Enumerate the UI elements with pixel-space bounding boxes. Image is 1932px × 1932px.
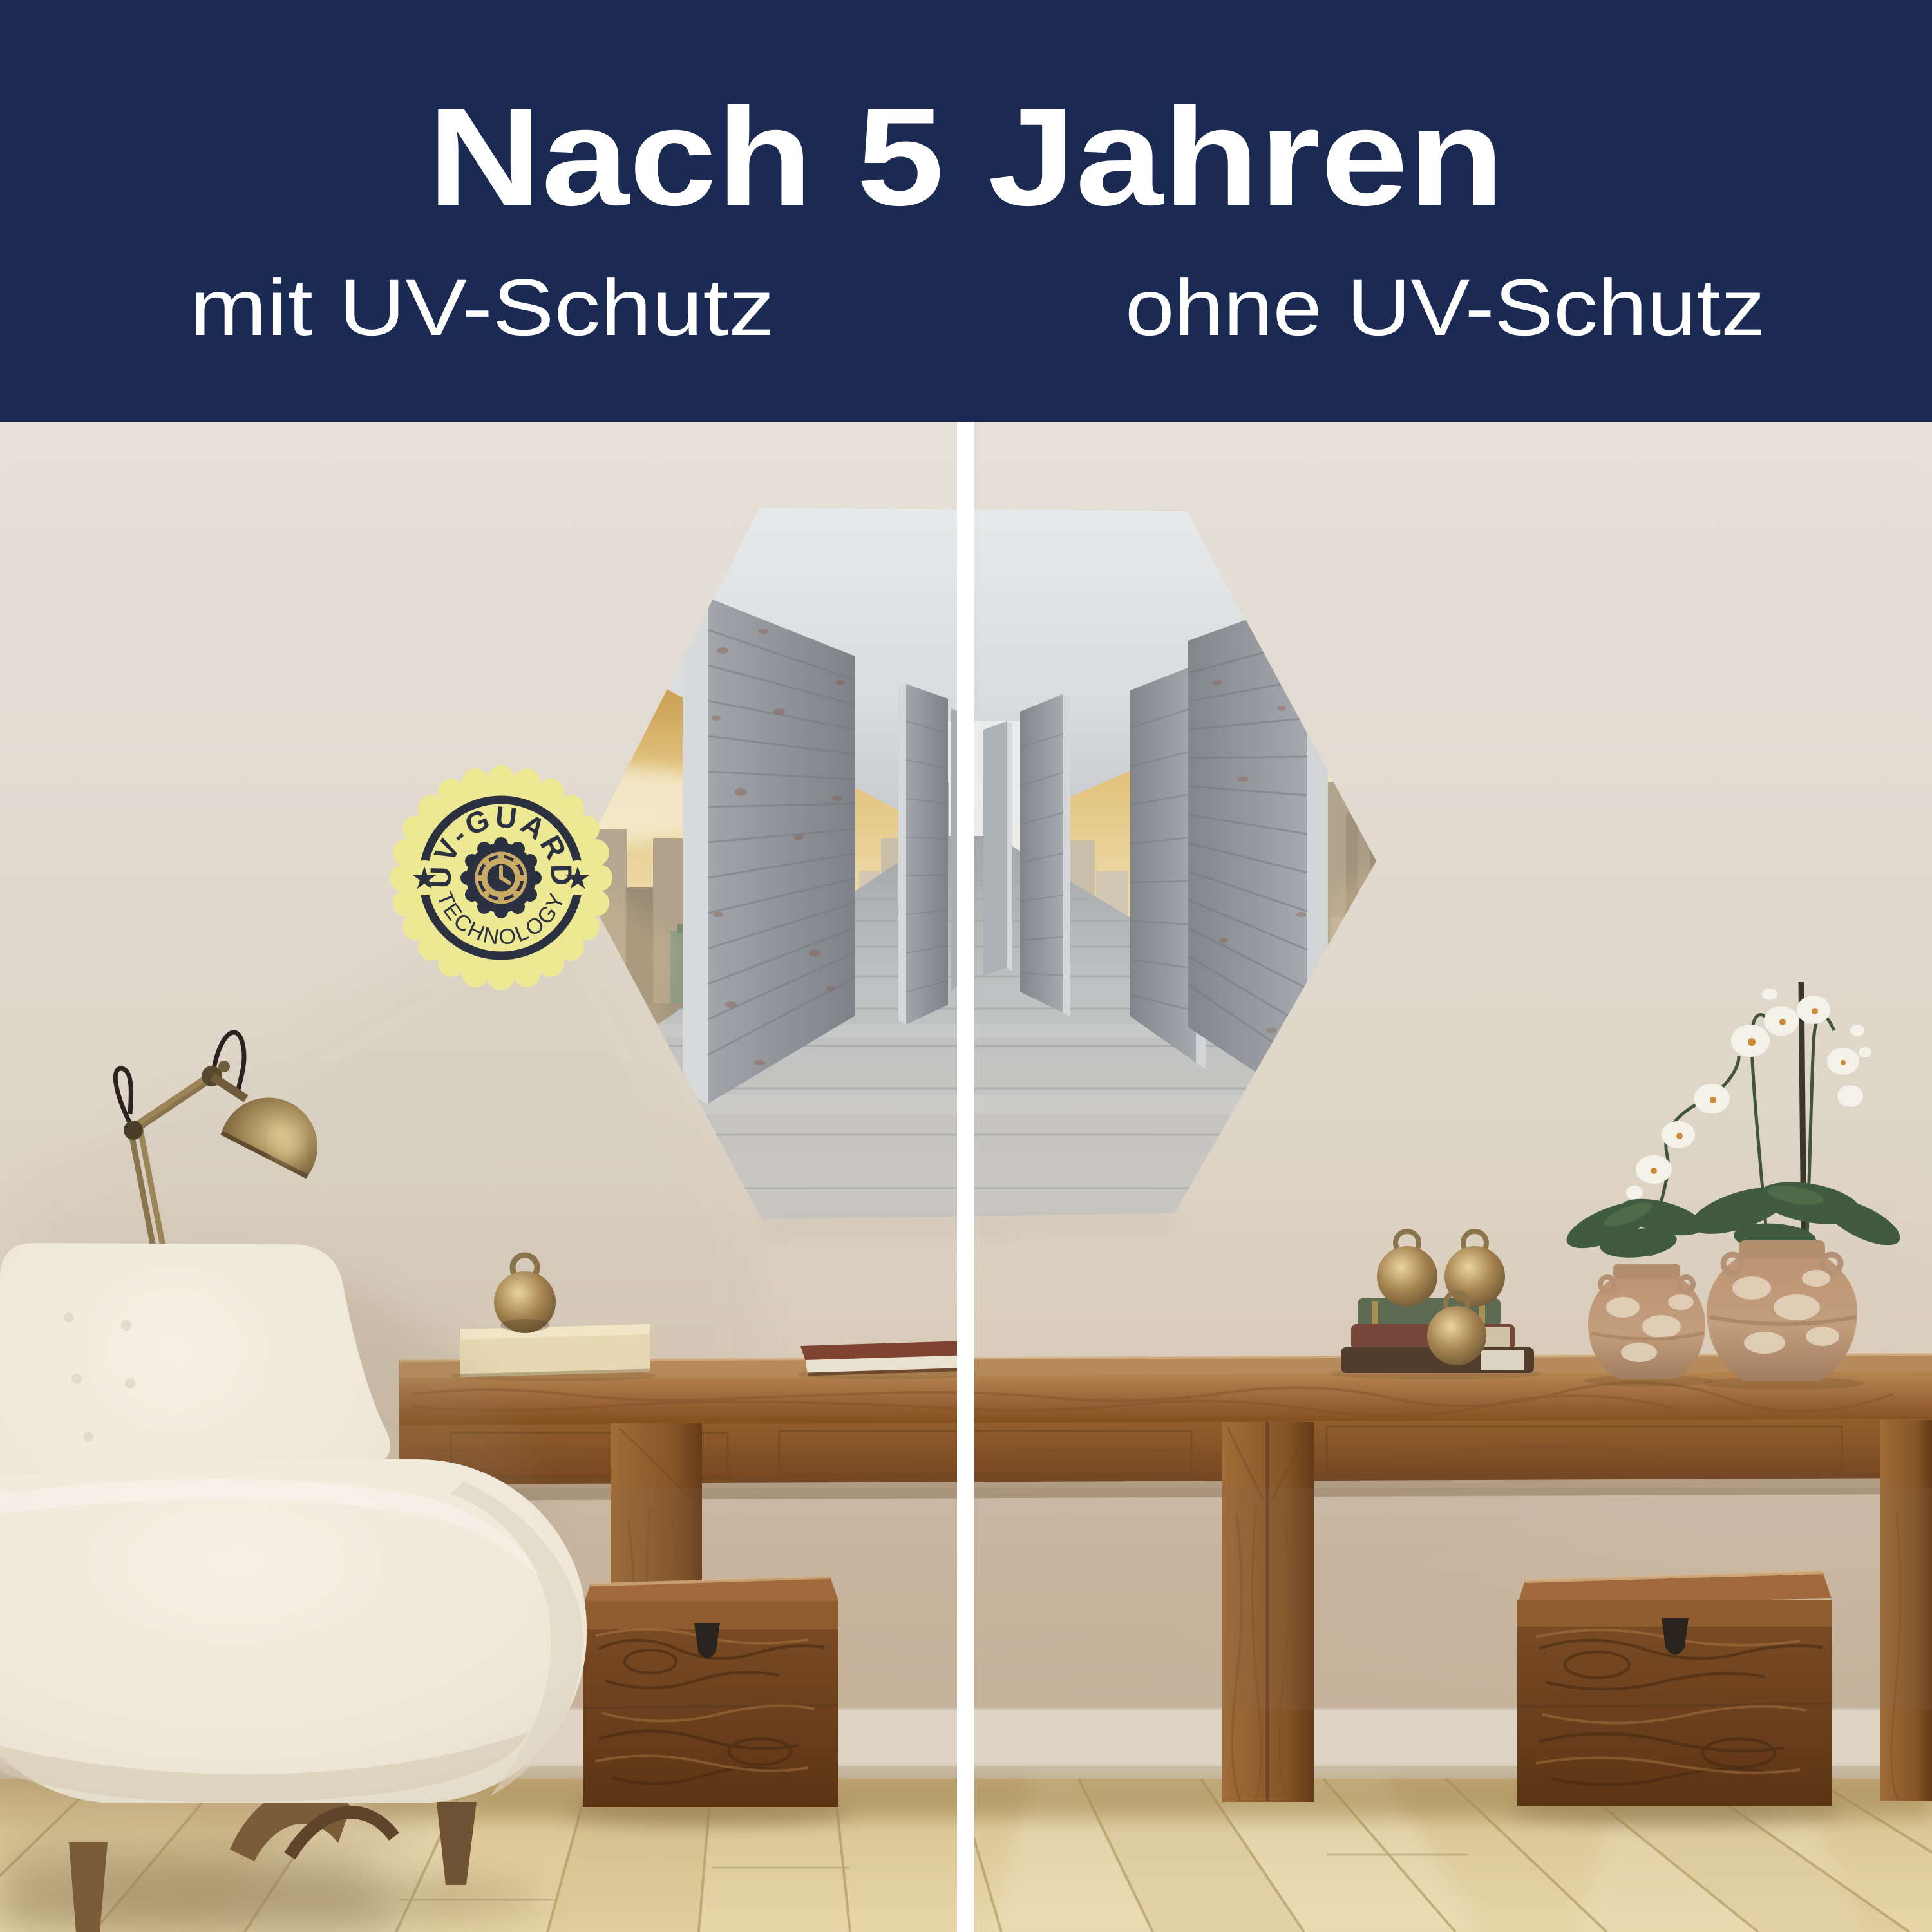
svg-text:★: ★: [563, 862, 591, 896]
svg-text:★: ★: [410, 862, 438, 896]
svg-text:Nach 5 Jahren: Nach 5 Jahren: [428, 79, 1504, 234]
svg-text:mit UV-Schutz: mit UV-Schutz: [190, 263, 775, 352]
svg-text:ohne UV-Schutz: ohne UV-Schutz: [1125, 263, 1765, 352]
